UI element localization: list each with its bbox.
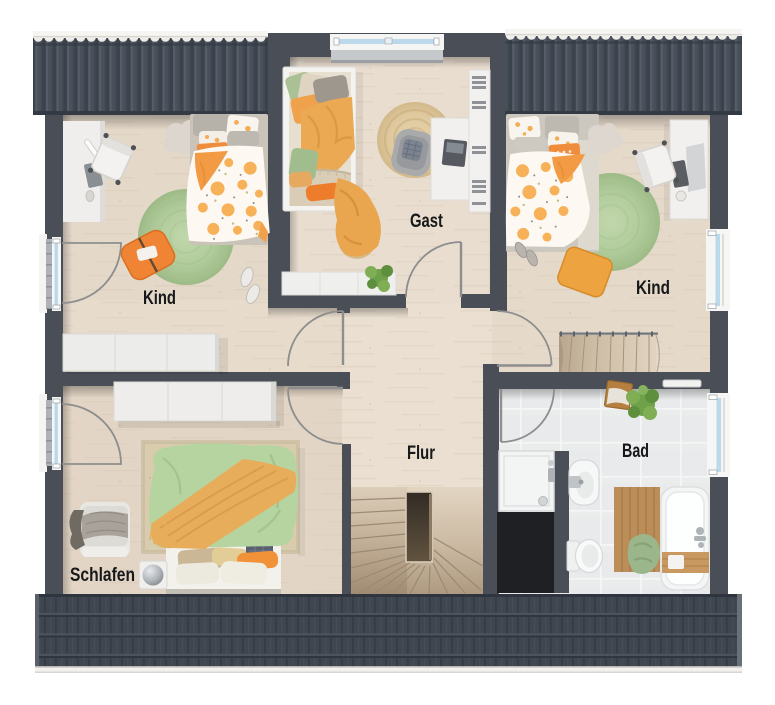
svg-text:Gast: Gast [410, 211, 444, 232]
svg-text:Kind: Kind [636, 278, 670, 299]
svg-text:Flur: Flur [407, 443, 435, 464]
svg-text:Kind: Kind [143, 288, 176, 309]
svg-text:Schlafen: Schlafen [70, 565, 135, 586]
svg-text:Bad: Bad [622, 441, 649, 462]
